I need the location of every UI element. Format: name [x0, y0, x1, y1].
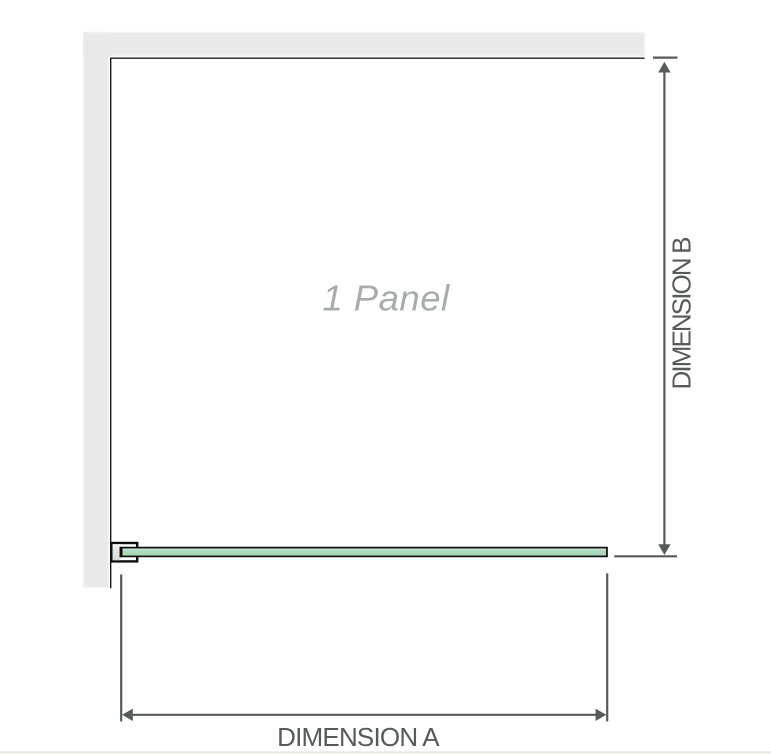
svg-text:DIMENSION B: DIMENSION B: [667, 238, 697, 390]
svg-text:1 Panel: 1 Panel: [322, 278, 450, 319]
svg-text:DIMENSION A: DIMENSION A: [277, 722, 440, 752]
